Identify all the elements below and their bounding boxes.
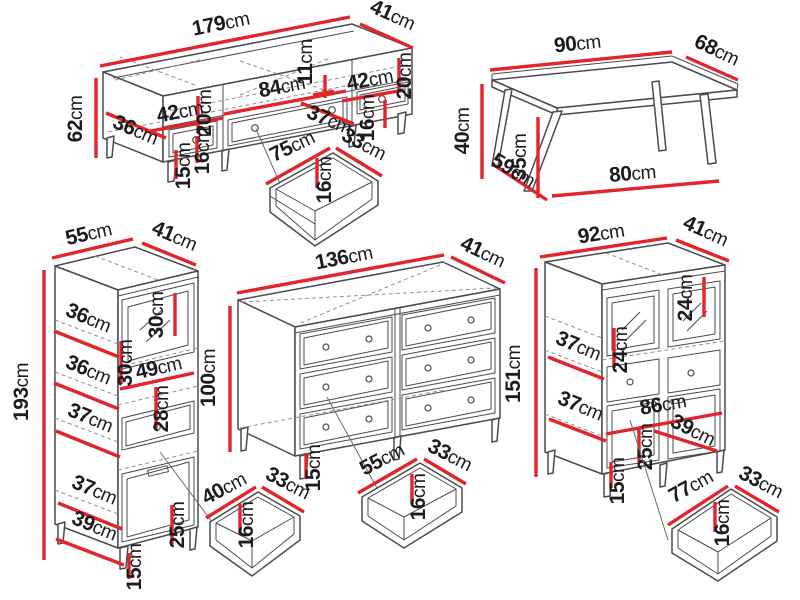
dim-display-glass-height-center: 24cm — [609, 327, 632, 374]
drawer-knob — [323, 384, 329, 390]
dim-table-width: 90cm — [553, 30, 602, 58]
dim-tv-drawer-height: 16cm — [313, 157, 336, 204]
dim-dresser-leg-height: 15cm — [302, 445, 325, 492]
dim-cab-leg-height: 15cm — [123, 544, 146, 591]
dim-tv-height: 62cm — [64, 96, 87, 143]
dim-table-leg-height: 35cm — [508, 134, 531, 181]
dim-cab-drawer-height: 16cm — [235, 502, 258, 549]
dim-table-height: 40cm — [451, 108, 474, 155]
leg — [241, 427, 248, 451]
drawer-knob — [425, 405, 431, 411]
dim-tv-right-section-height: 20cm — [393, 53, 416, 100]
drawer-knob — [627, 379, 633, 385]
drawer-knob — [425, 365, 431, 371]
drawer-knob — [468, 317, 474, 323]
dim-display-bottom-section-height: 25cm — [634, 424, 657, 471]
dim-display-drawer-height: 16cm — [711, 500, 734, 547]
drawer-knob — [688, 370, 694, 376]
tv-stand-drawing: 179cm 41cm 62cm 36cm 42cm 20cm 16cm 15cm… — [64, 0, 419, 246]
drawer-knob — [366, 376, 372, 382]
dim-cab-height: 193cm — [10, 363, 33, 421]
leg — [222, 149, 229, 171]
dim-cab-top-section-height: 30cm — [145, 292, 168, 339]
leg — [717, 450, 724, 473]
drawer-knob — [252, 125, 259, 132]
leg — [190, 527, 197, 550]
dim-cab-bottom-section-height: 25cm — [166, 502, 189, 549]
dim-display-glass-height-right: 24cm — [674, 275, 697, 322]
coffee-table-drawing: 90cm 68cm 40cm 59cm 35cm 80cm — [451, 30, 743, 200]
dim-display-leg-height: 15cm — [606, 458, 629, 505]
drawer-knob — [366, 416, 372, 422]
leg — [107, 136, 114, 158]
leg — [700, 94, 716, 164]
dim-table-inner-width: 80cm — [608, 160, 657, 187]
dim-dresser-depth: 41cm — [457, 232, 509, 273]
display-cabinet-drawing: 92cm 41cm 151cm 24cm 24cm 37cm 37cm 86cm… — [502, 211, 787, 581]
dim-dresser-height: 100cm — [197, 349, 220, 407]
furniture-dimension-sheet: 179cm 41cm 62cm 36cm 42cm 20cm 16cm 15cm… — [0, 0, 800, 600]
drawer-knob — [468, 357, 474, 363]
drawer-knob — [425, 325, 431, 331]
dim-tv-leg-height: 15cm — [172, 143, 195, 190]
dim-tv-width: 179cm — [190, 7, 251, 41]
dim-display-drawer-width: 77cm — [665, 465, 717, 508]
leg — [398, 112, 406, 134]
drawer-knob — [323, 424, 329, 430]
drawer-knob — [366, 336, 372, 342]
dim-dresser-drawer-height: 16cm — [407, 474, 430, 521]
tv-stand-drawer-box: 75cm 33cm 16cm — [256, 123, 390, 246]
drawer-knob — [323, 344, 329, 350]
drawer-knob — [468, 397, 474, 403]
dim-tv-top-shelf-height: 11cm — [294, 39, 317, 85]
dim-display-height: 151cm — [502, 345, 525, 403]
leg — [548, 450, 555, 474]
dim-cab-drawer-front-height: 28cm — [150, 386, 173, 433]
leg — [492, 418, 499, 442]
diagram-canvas: 179cm 41cm 62cm 36cm 42cm 20cm 16cm 15cm… — [0, 0, 800, 600]
leg — [660, 463, 667, 487]
